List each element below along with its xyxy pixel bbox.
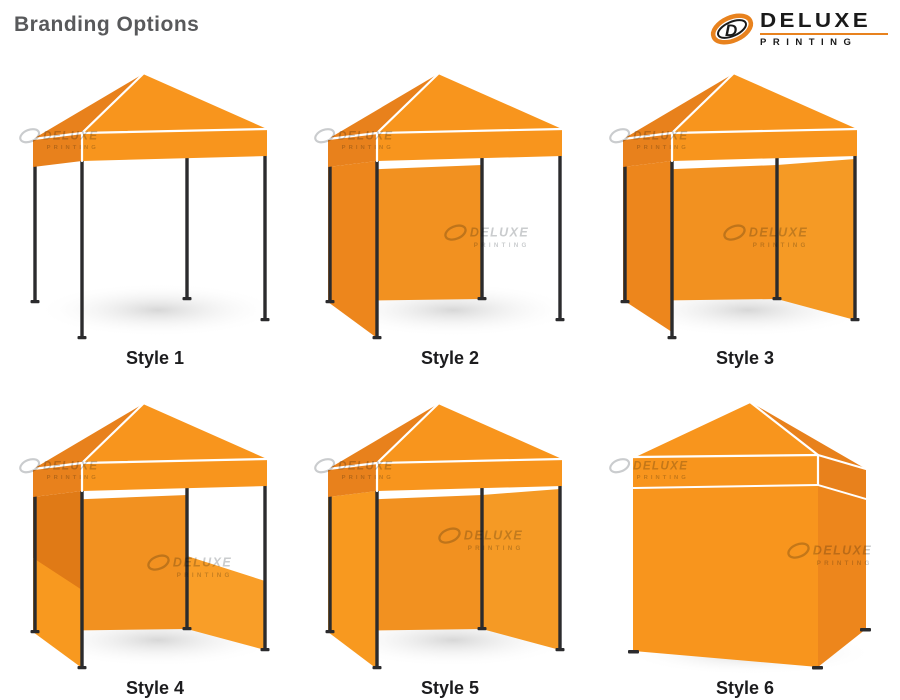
wall-right [482, 489, 560, 650]
style-card-3: DELUXE PRINTING DELUXE PRINTING Style 3 [600, 60, 890, 370]
watermark-logo: DELUXE PRINTING [313, 452, 425, 483]
wall-front [633, 486, 818, 667]
svg-text:DELUXE: DELUXE [173, 555, 232, 569]
svg-text:PRINTING: PRINTING [177, 572, 233, 579]
canopy [33, 74, 267, 167]
style-label-6: Style 6 [600, 678, 890, 699]
style-label-3: Style 3 [600, 348, 890, 369]
svg-text:PRINTING: PRINTING [753, 242, 809, 249]
svg-text:PRINTING: PRINTING [637, 145, 689, 151]
style-card-1: DELUXE PRINTING Style 1 [10, 60, 300, 370]
svg-text:PRINTING: PRINTING [342, 475, 394, 481]
style-label-5: Style 5 [305, 678, 595, 699]
tent-illustration-style-3 [600, 60, 890, 370]
tent-illustration-style-2 [305, 60, 595, 370]
style-label-1: Style 1 [10, 348, 300, 369]
svg-text:DELUXE: DELUXE [338, 459, 393, 472]
svg-text:DELUXE: DELUXE [43, 459, 98, 472]
ground-shadow [36, 283, 280, 337]
svg-text:DELUXE: DELUXE [749, 225, 808, 239]
svg-text:DELUXE: DELUXE [470, 225, 529, 239]
svg-text:DELUXE: DELUXE [464, 528, 523, 542]
svg-text:PRINTING: PRINTING [47, 475, 99, 481]
svg-text:PRINTING: PRINTING [468, 545, 524, 552]
canopy [328, 74, 562, 167]
canopy [328, 404, 562, 497]
svg-text:DELUXE: DELUXE [813, 543, 872, 557]
svg-text:PRINTING: PRINTING [817, 560, 873, 567]
svg-text:PRINTING: PRINTING [637, 475, 689, 481]
brand-logo: D DELUXE PRINTING [709, 9, 888, 49]
svg-text:DELUXE: DELUXE [338, 129, 393, 142]
style-label-4: Style 4 [10, 678, 300, 699]
style-card-2: DELUXE PRINTING DELUXE PRINTING Style 2 [305, 60, 595, 370]
watermark-logo: DELUXE PRINTING [608, 452, 720, 483]
svg-text:D: D [725, 21, 737, 40]
svg-text:DELUXE: DELUXE [633, 129, 688, 142]
brand-logo-text: DELUXE PRINTING [760, 11, 888, 48]
page-title: Branding Options [14, 13, 199, 37]
watermark-logo: DELUXE PRINTING [146, 548, 266, 581]
style-card-5: DELUXE PRINTING DELUXE PRINTING Style 5 [305, 390, 595, 700]
watermark-logo: DELUXE PRINTING [18, 122, 130, 153]
svg-text:DELUXE: DELUXE [43, 129, 98, 142]
branding-options-page: Branding Options D DELUXE PRINTING [0, 0, 900, 700]
wall-right-return [818, 486, 866, 667]
svg-text:PRINTING: PRINTING [474, 242, 530, 249]
watermark-logo: DELUXE PRINTING [437, 521, 557, 554]
svg-text:DELUXE: DELUXE [633, 459, 688, 472]
canopy [33, 404, 267, 497]
tent-illustration-style-4 [10, 390, 300, 700]
watermark-logo: DELUXE PRINTING [786, 536, 900, 569]
style-card-4: DELUXE PRINTING DELUXE PRINTING Style 4 [10, 390, 300, 700]
tent-illustration-style-1 [10, 60, 300, 370]
deluxe-d-emblem-icon: D [709, 9, 755, 49]
watermark-logo: DELUXE PRINTING [722, 218, 842, 251]
watermark-logo: DELUXE PRINTING [608, 122, 720, 153]
watermark-logo: DELUXE PRINTING [313, 122, 425, 153]
style-label-2: Style 2 [305, 348, 595, 369]
canopy [623, 74, 857, 167]
svg-text:PRINTING: PRINTING [47, 145, 99, 151]
brand-name: DELUXE [760, 11, 871, 31]
canopy [633, 402, 866, 498]
brand-subtitle: PRINTING [760, 37, 857, 48]
brand-logo-rule [760, 33, 888, 35]
watermark-logo: DELUXE PRINTING [18, 452, 130, 483]
watermark-logo: DELUXE PRINTING [443, 218, 563, 251]
style-card-6: DELUXE PRINTING DELUXE PRINTING Style 6 [600, 390, 890, 700]
svg-text:PRINTING: PRINTING [342, 145, 394, 151]
